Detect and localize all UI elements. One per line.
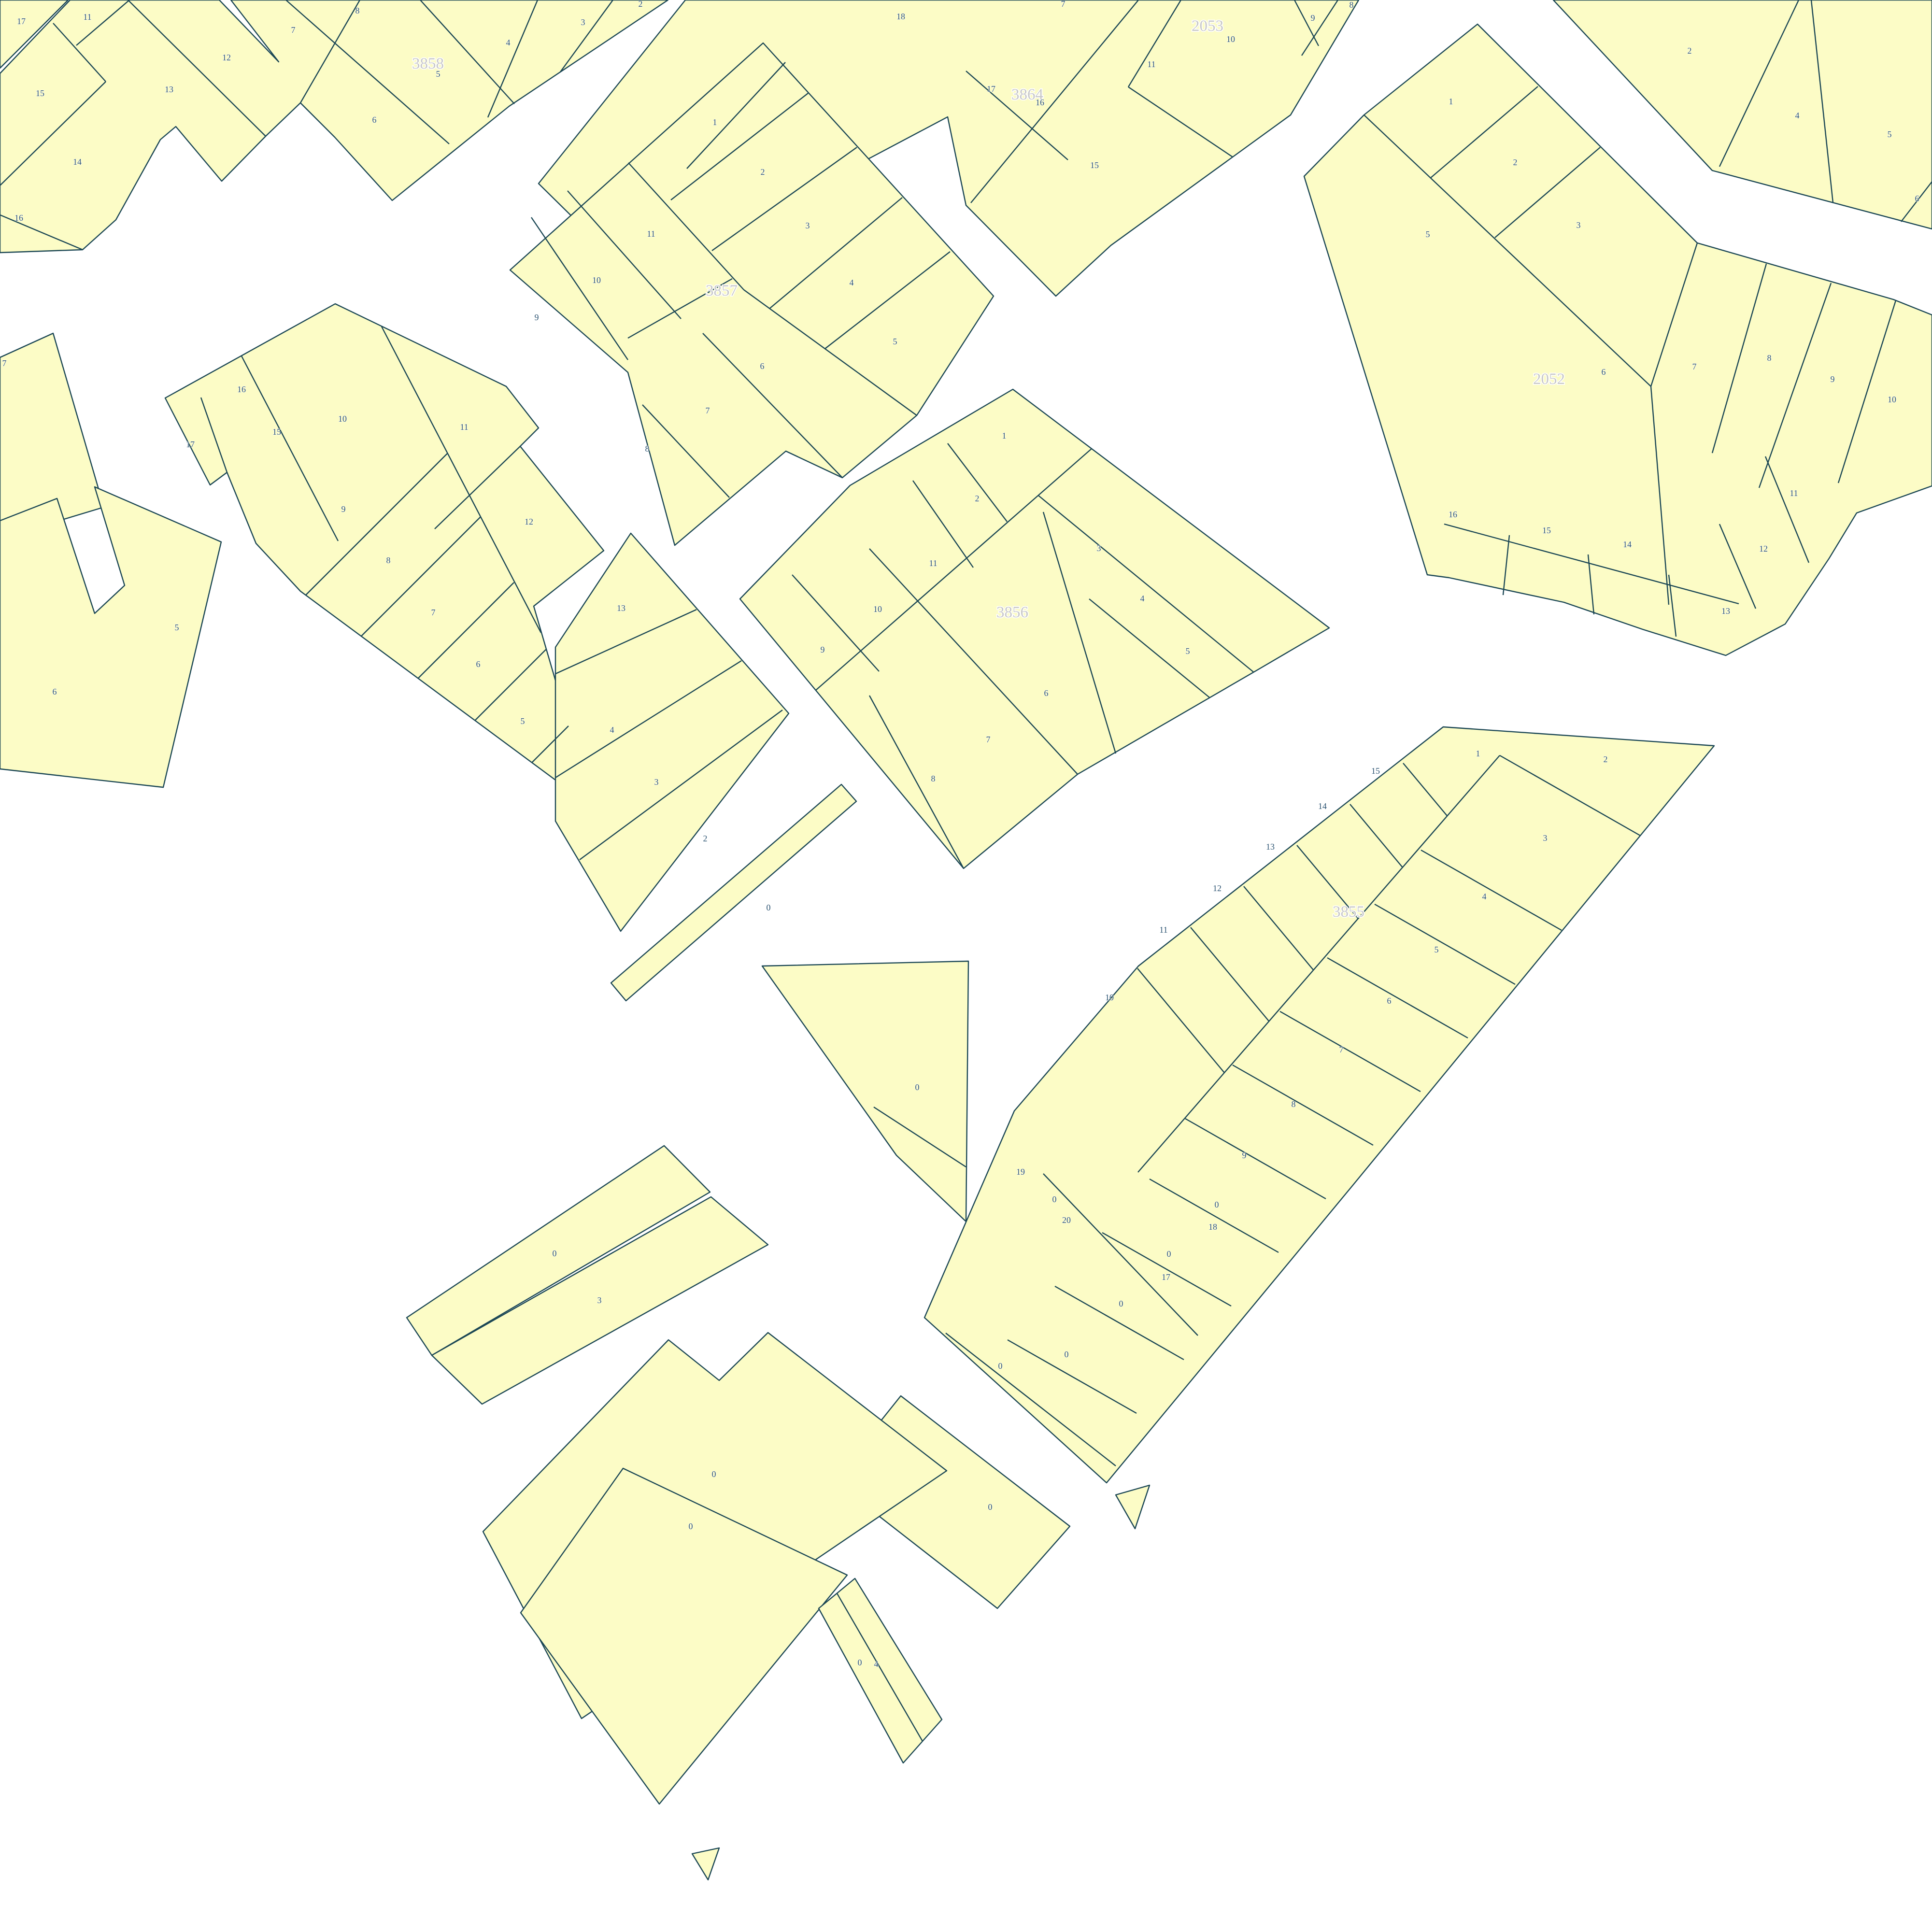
svg-text:17: 17 [1162,1272,1170,1282]
svg-text:16: 16 [1036,98,1044,107]
svg-text:6: 6 [372,115,377,125]
svg-text:2: 2 [1688,46,1692,56]
svg-text:4: 4 [850,278,854,287]
svg-text:1: 1 [1002,431,1007,440]
svg-text:0: 0 [915,1082,920,1092]
svg-text:17: 17 [987,84,995,94]
svg-text:4: 4 [1482,892,1487,901]
svg-text:3856: 3856 [996,604,1028,621]
svg-text:10: 10 [1226,34,1235,44]
svg-text:0: 0 [1065,1350,1069,1359]
svg-text:7: 7 [1339,1045,1344,1054]
svg-text:8: 8 [355,6,360,15]
svg-text:8: 8 [1767,353,1772,363]
svg-text:5: 5 [1426,229,1430,239]
svg-text:11: 11 [1159,925,1167,935]
svg-text:3: 3 [654,777,659,787]
svg-text:0: 0 [712,1469,716,1479]
svg-text:2: 2 [975,494,980,503]
svg-text:6: 6 [476,659,481,669]
svg-text:15: 15 [36,88,44,98]
svg-text:0: 0 [988,1502,993,1512]
svg-text:0: 0 [998,1361,1003,1371]
svg-text:9: 9 [1831,374,1835,384]
svg-text:6: 6 [1915,194,1919,203]
svg-text:3: 3 [581,17,585,27]
svg-text:4: 4 [610,725,614,735]
svg-text:5: 5 [436,69,440,79]
svg-text:5: 5 [1888,129,1892,139]
svg-text:2: 2 [1513,157,1518,167]
svg-text:5: 5 [893,337,897,346]
svg-text:4: 4 [874,1659,879,1669]
svg-text:8: 8 [386,555,391,565]
svg-text:13: 13 [1721,606,1730,616]
svg-text:15: 15 [272,427,281,437]
svg-text:2: 2 [639,0,643,9]
svg-text:0: 0 [1052,1194,1057,1204]
svg-text:19: 19 [1016,1167,1025,1177]
svg-text:11: 11 [460,422,468,432]
svg-text:3: 3 [806,221,810,230]
svg-text:12: 12 [1213,883,1222,893]
svg-text:11: 11 [1147,59,1155,69]
svg-text:6: 6 [53,687,57,696]
svg-text:3857: 3857 [706,282,738,299]
svg-text:8: 8 [1292,1099,1296,1109]
svg-text:15: 15 [1371,766,1380,776]
svg-text:5: 5 [1435,945,1439,954]
svg-text:13: 13 [1266,842,1275,852]
svg-text:8: 8 [645,444,650,454]
svg-text:5: 5 [521,716,525,726]
svg-text:2053: 2053 [1192,17,1223,35]
svg-text:20: 20 [1062,1215,1071,1225]
svg-text:16: 16 [1449,510,1457,519]
svg-text:11: 11 [83,12,91,22]
svg-text:18: 18 [896,12,905,21]
svg-text:0: 0 [858,1658,862,1667]
svg-text:4: 4 [1140,594,1145,603]
svg-text:2: 2 [761,167,765,177]
svg-text:14: 14 [1623,540,1632,549]
svg-text:6: 6 [1387,996,1392,1006]
svg-text:3855: 3855 [1333,903,1364,921]
svg-text:9: 9 [535,313,539,322]
svg-text:7: 7 [1061,0,1065,9]
svg-text:10: 10 [592,275,601,285]
svg-text:5: 5 [1186,646,1190,656]
svg-text:3: 3 [597,1295,602,1305]
svg-text:14: 14 [73,157,82,167]
svg-text:1: 1 [1476,749,1480,758]
svg-text:7: 7 [291,25,296,35]
svg-text:10: 10 [1105,993,1114,1002]
svg-text:9: 9 [1311,13,1315,23]
svg-text:7: 7 [1692,362,1697,371]
svg-text:7: 7 [986,735,991,744]
svg-text:13: 13 [165,85,173,94]
svg-text:10: 10 [1888,395,1896,404]
svg-text:6: 6 [1044,688,1049,698]
svg-text:11: 11 [647,229,655,239]
svg-text:18: 18 [1208,1222,1217,1232]
svg-text:0: 0 [1119,1299,1123,1308]
svg-text:7: 7 [2,358,7,368]
svg-text:6: 6 [760,361,765,371]
svg-text:15: 15 [1090,160,1099,170]
svg-text:11: 11 [929,558,937,568]
svg-text:0: 0 [553,1249,557,1258]
svg-text:1: 1 [713,117,717,127]
svg-text:9: 9 [341,504,346,514]
svg-text:7: 7 [706,406,710,415]
svg-text:4: 4 [506,38,511,47]
svg-text:0: 0 [767,903,771,912]
svg-text:3: 3 [1097,543,1101,553]
svg-text:12: 12 [1759,544,1768,554]
svg-text:4: 4 [1795,111,1800,120]
svg-text:10: 10 [873,604,882,614]
svg-text:16: 16 [14,213,23,223]
svg-text:9: 9 [821,645,825,654]
svg-text:0: 0 [1167,1249,1171,1259]
svg-text:12: 12 [525,517,533,526]
svg-text:0: 0 [689,1521,693,1531]
svg-text:3: 3 [1543,833,1548,843]
svg-text:8: 8 [1350,0,1354,10]
svg-text:7: 7 [431,608,436,617]
svg-text:15: 15 [1542,526,1551,535]
svg-text:1: 1 [1449,97,1453,106]
svg-text:11: 11 [1790,488,1798,498]
svg-text:8: 8 [931,774,936,783]
svg-text:16: 16 [237,384,246,394]
svg-text:0: 0 [1215,1200,1219,1209]
svg-text:13: 13 [617,603,625,613]
svg-text:12: 12 [222,53,231,62]
svg-text:6: 6 [1602,367,1606,377]
svg-text:17: 17 [186,440,195,449]
svg-text:2: 2 [703,834,708,843]
svg-text:9: 9 [1242,1151,1247,1160]
svg-text:10: 10 [338,414,347,424]
svg-text:2: 2 [1604,754,1608,764]
svg-text:3: 3 [1577,220,1581,230]
svg-text:2052: 2052 [1533,370,1565,388]
svg-text:17: 17 [17,16,26,26]
svg-text:5: 5 [175,623,179,632]
svg-text:14: 14 [1318,801,1327,811]
